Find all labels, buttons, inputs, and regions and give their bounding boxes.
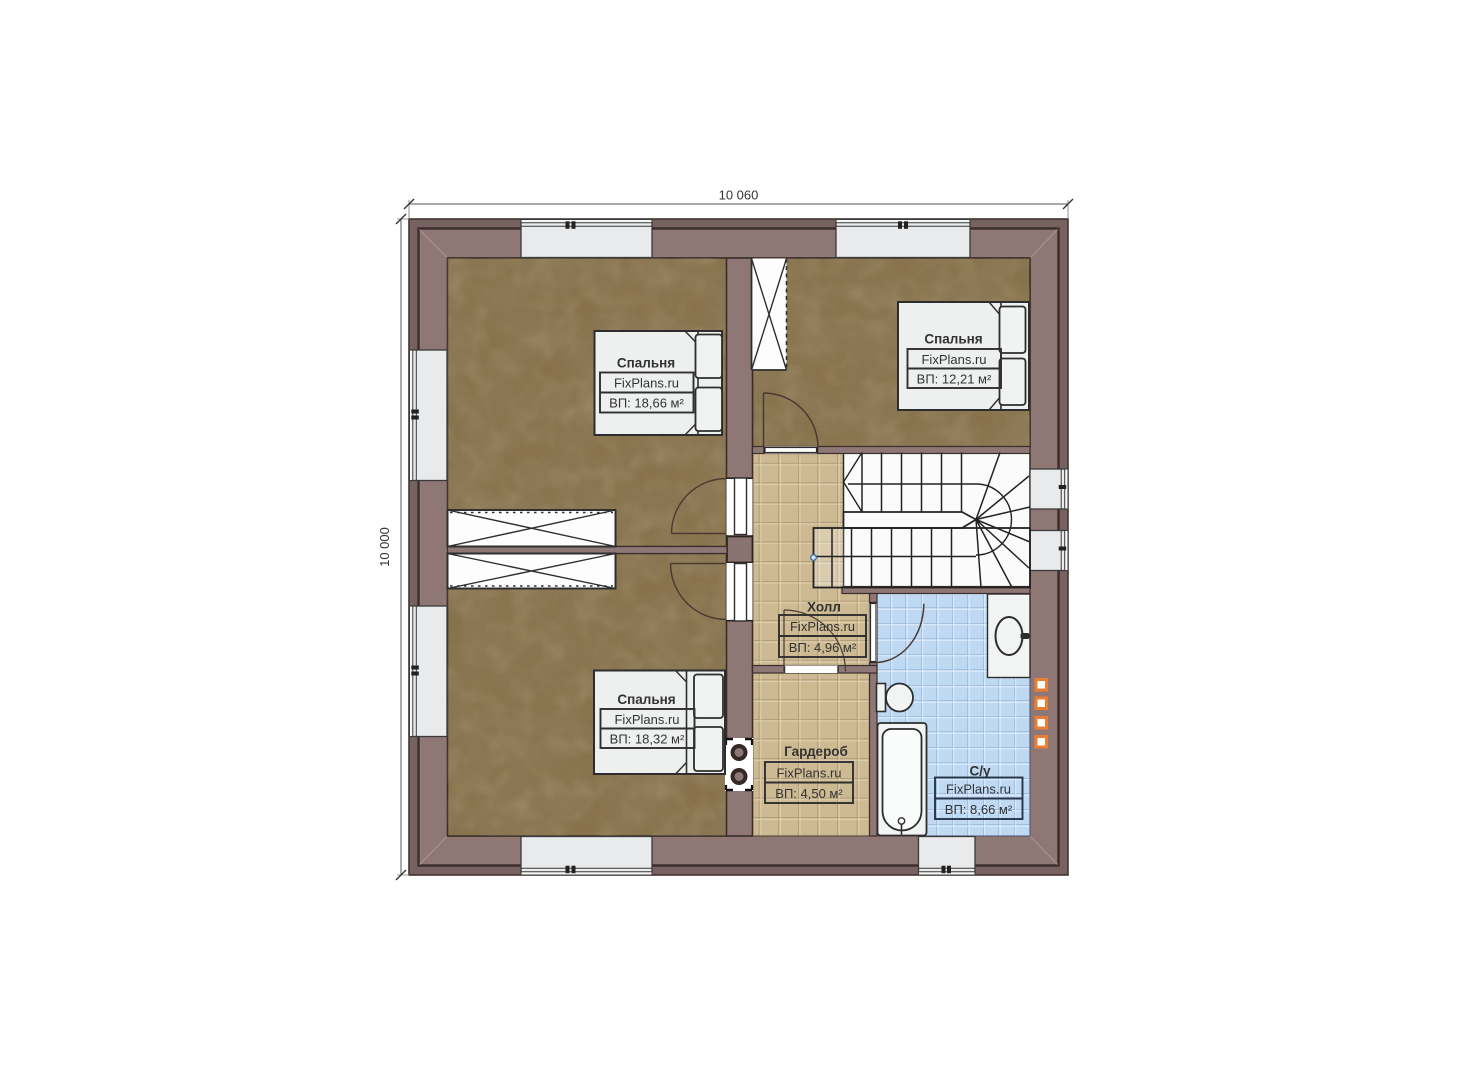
svg-text:FixPlans.ru: FixPlans.ru (921, 352, 986, 367)
svg-text:ВП: 4,50 м²: ВП: 4,50 м² (775, 786, 843, 801)
svg-text:Холл: Холл (807, 600, 841, 615)
svg-text:10 000: 10 000 (377, 527, 392, 567)
svg-text:FixPlans.ru: FixPlans.ru (614, 376, 679, 391)
svg-text:10 060: 10 060 (719, 188, 759, 203)
svg-text:Спальня: Спальня (924, 332, 982, 347)
svg-text:Спальня: Спальня (617, 356, 675, 371)
svg-text:FixPlans.ru: FixPlans.ru (790, 619, 855, 634)
svg-text:Спальня: Спальня (617, 692, 675, 707)
svg-text:ВП: 8,66 м²: ВП: 8,66 м² (945, 802, 1013, 817)
svg-text:FixPlans.ru: FixPlans.ru (614, 712, 679, 727)
svg-text:ВП: 18,66 м²: ВП: 18,66 м² (609, 396, 684, 411)
svg-text:С/у: С/у (969, 764, 991, 779)
svg-text:ВП: 4,96 м²: ВП: 4,96 м² (789, 640, 857, 655)
svg-text:ВП: 18,32 м²: ВП: 18,32 м² (610, 732, 685, 747)
svg-text:FixPlans.ru: FixPlans.ru (946, 782, 1011, 797)
svg-text:ВП: 12,21 м²: ВП: 12,21 м² (917, 372, 992, 387)
svg-text:FixPlans.ru: FixPlans.ru (776, 766, 841, 781)
svg-text:Гардероб: Гардероб (784, 744, 848, 759)
